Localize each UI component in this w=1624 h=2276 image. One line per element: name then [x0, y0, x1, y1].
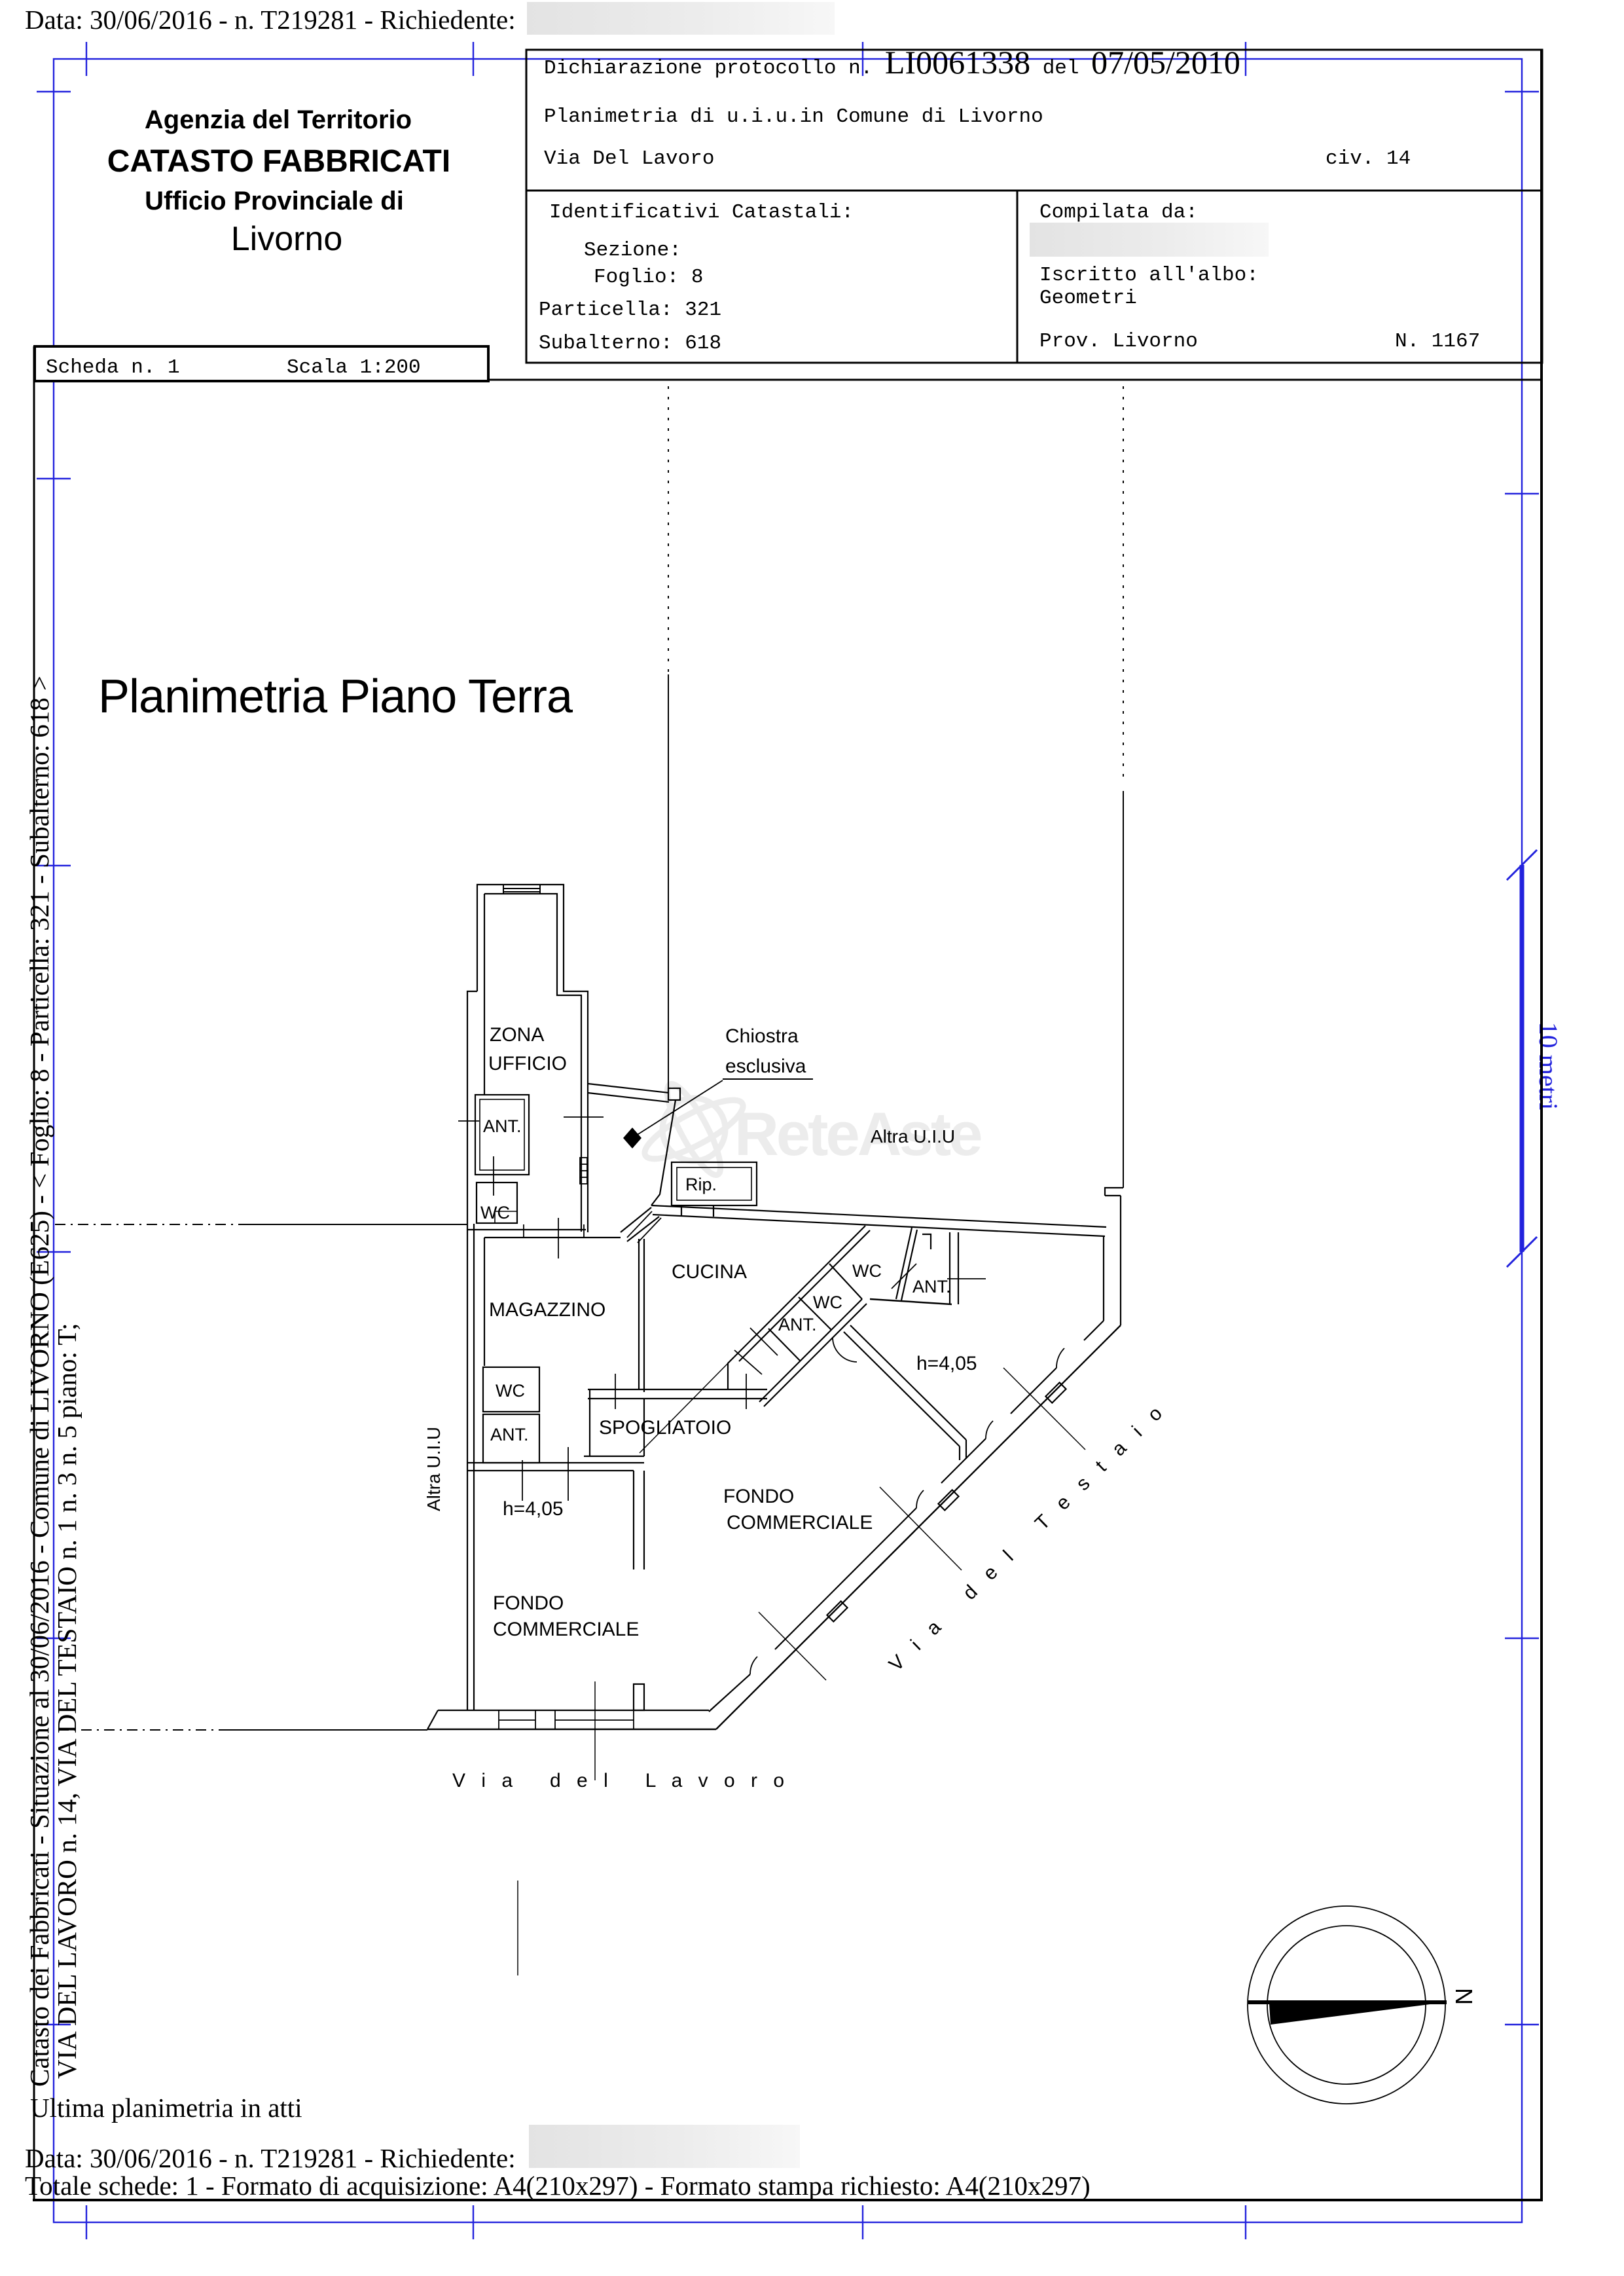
- svg-text:Compilata da:: Compilata da:: [1039, 201, 1198, 224]
- svg-text:civ. 14: civ. 14: [1326, 147, 1411, 170]
- svg-text:Data: 30/06/2016 - n. T219281: Data: 30/06/2016 - n. T219281 - Richiede…: [25, 5, 516, 35]
- svg-text:Sezione:: Sezione:: [584, 239, 681, 262]
- svg-text:Iscritto all'albo:: Iscritto all'albo:: [1039, 264, 1259, 287]
- svg-text:Planimetria Piano Terra: Planimetria Piano Terra: [98, 670, 573, 723]
- svg-text:MAGAZZINO: MAGAZZINO: [489, 1299, 605, 1321]
- svg-text:WC: WC: [813, 1293, 842, 1312]
- svg-text:ANT.: ANT.: [483, 1116, 522, 1136]
- svg-text:Particella: 321: Particella: 321: [539, 299, 721, 321]
- svg-text:ANT.: ANT.: [490, 1425, 529, 1444]
- svg-text:Planimetria di u.i.u.in Comune: Planimetria di u.i.u.in Comune di Livorn…: [544, 105, 1043, 128]
- svg-text:Scheda n. 1: Scheda n. 1: [46, 356, 180, 379]
- svg-text:Chiostra: Chiostra: [725, 1025, 799, 1047]
- svg-text:Ufficio Provinciale di: Ufficio Provinciale di: [145, 187, 404, 215]
- svg-text:WC: WC: [852, 1261, 882, 1281]
- svg-text:Scala 1:200: Scala 1:200: [287, 356, 421, 379]
- svg-text:Subalterno: 618: Subalterno: 618: [539, 332, 721, 355]
- svg-text:ANT.: ANT.: [912, 1277, 951, 1296]
- svg-text:FONDO: FONDO: [493, 1592, 564, 1614]
- svg-text:COMMERCIALE: COMMERCIALE: [493, 1619, 639, 1640]
- svg-text:Catasto dei Fabbricati - Situa: Catasto dei Fabbricati - Situazione al 3…: [24, 676, 54, 2087]
- svg-text:10 metri: 10 metri: [1534, 1022, 1563, 1110]
- svg-text:Data: 30/06/2016 - n. T219281: Data: 30/06/2016 - n. T219281 - Richiede…: [25, 2143, 516, 2173]
- svg-text:VIA DEL LAVORO n. 14, VIA DEL: VIA DEL LAVORO n. 14, VIA DEL TESTAIO n.…: [52, 1323, 82, 2079]
- svg-text:ANT.: ANT.: [778, 1315, 817, 1334]
- svg-text:Agenzia del Territorio: Agenzia del Territorio: [145, 105, 412, 134]
- svg-text:ZONA: ZONA: [490, 1024, 544, 1046]
- svg-text:WC: WC: [496, 1381, 525, 1401]
- svg-text:N. 1167: N. 1167: [1395, 330, 1480, 353]
- svg-text:Geometri: Geometri: [1039, 287, 1137, 310]
- svg-text:Ultima planimetria in atti: Ultima planimetria in atti: [30, 2093, 302, 2123]
- svg-text:SPOGLIATOIO: SPOGLIATOIO: [599, 1417, 731, 1439]
- svg-text:COMMERCIALE: COMMERCIALE: [727, 1512, 873, 1533]
- svg-text:h=4,05: h=4,05: [503, 1498, 564, 1520]
- svg-text:Altra U.I.U: Altra U.I.U: [424, 1427, 444, 1511]
- svg-text:Rip.: Rip.: [685, 1175, 717, 1194]
- svg-text:esclusiva: esclusiva: [725, 1055, 806, 1077]
- svg-text:UFFICIO: UFFICIO: [488, 1053, 567, 1074]
- svg-text:WC: WC: [480, 1203, 510, 1222]
- svg-text:CATASTO FABBRICATI: CATASTO FABBRICATI: [107, 144, 450, 179]
- svg-text:V i a d e l L a v o r o: V i a d e l L a v o r o: [452, 1770, 789, 1791]
- svg-text:Livorno: Livorno: [231, 220, 343, 258]
- svg-text:FONDO: FONDO: [723, 1486, 794, 1507]
- svg-text:Via Del Lavoro: Via Del Lavoro: [544, 147, 714, 170]
- svg-text:CUCINA: CUCINA: [672, 1261, 747, 1283]
- svg-text:h=4,05: h=4,05: [916, 1353, 977, 1374]
- svg-text:N: N: [1451, 1988, 1477, 2005]
- svg-text:Foglio: 8: Foglio: 8: [594, 266, 703, 289]
- svg-text:Totale schede: 1 - Formato di: Totale schede: 1 - Formato di acquisizio…: [25, 2171, 1091, 2201]
- svg-text:Prov. Livorno: Prov. Livorno: [1039, 330, 1198, 353]
- svg-text:Altra U.I.U: Altra U.I.U: [871, 1126, 955, 1147]
- svg-text:Identificativi Catastali:: Identificativi Catastali:: [549, 201, 854, 224]
